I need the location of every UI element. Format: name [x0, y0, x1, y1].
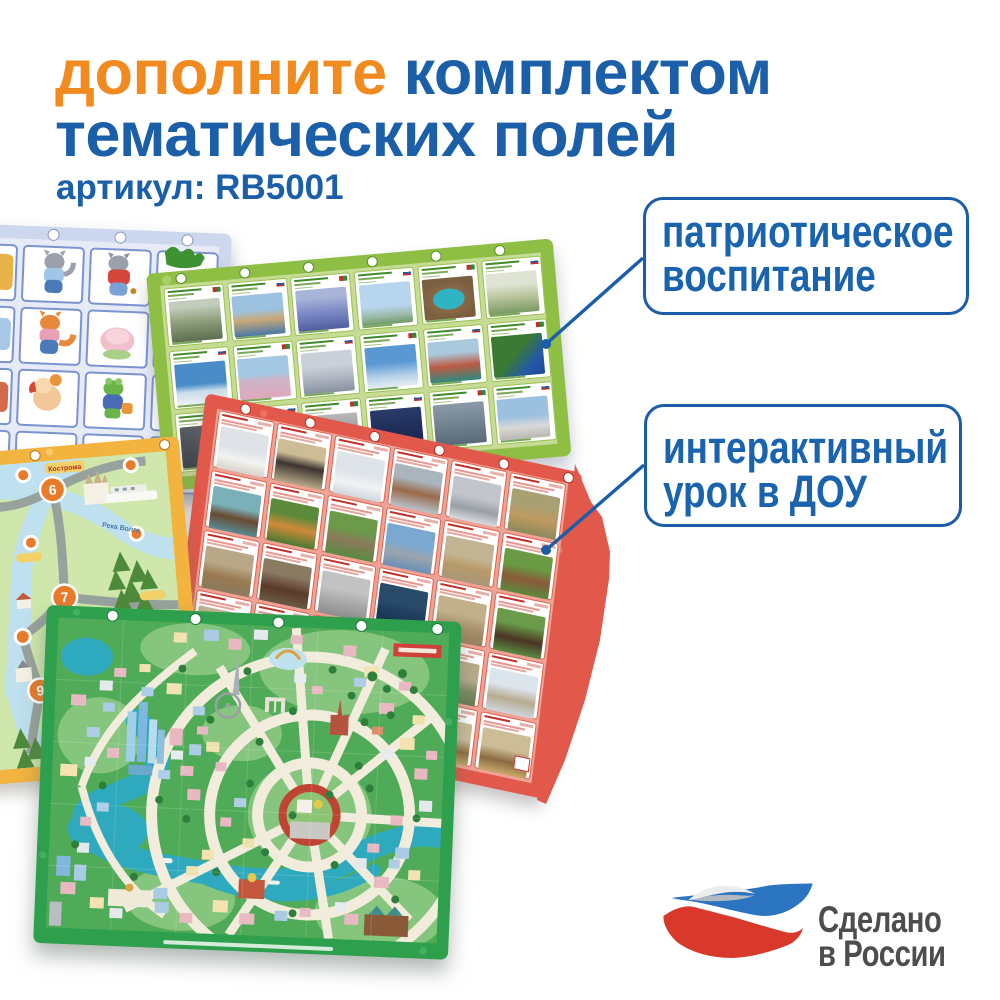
svg-text:6: 6: [48, 481, 57, 498]
svg-text:7: 7: [60, 589, 69, 606]
